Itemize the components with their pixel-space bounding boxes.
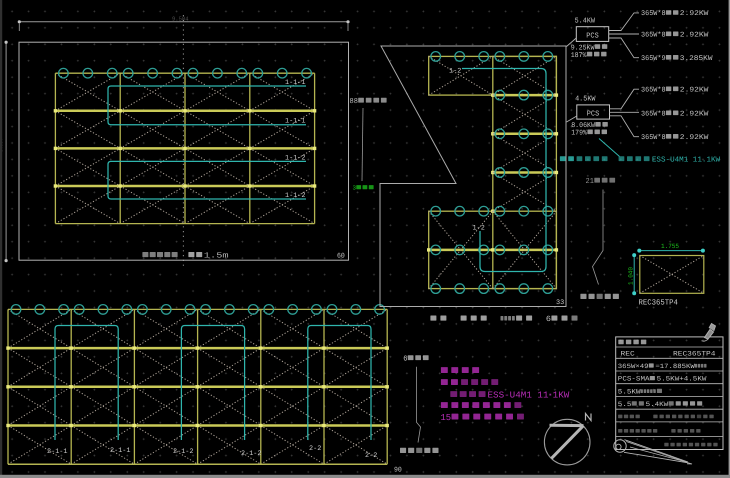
svg-text:2-2: 2-2 [309, 445, 321, 453]
svg-text:1-2: 1-2 [473, 225, 485, 233]
svg-text:3: 3 [353, 185, 357, 192]
svg-text:365W*8: 365W*8 [641, 110, 666, 119]
svg-text:3.285KW: 3.285KW [680, 55, 713, 63]
svg-text:365W*8: 365W*8 [641, 9, 666, 18]
svg-text:4.5KW: 4.5KW [575, 96, 596, 104]
svg-text:PCS: PCS [586, 33, 599, 41]
svg-text:REC365TP4: REC365TP4 [673, 351, 716, 359]
svg-text:5.4KW: 5.4KW [575, 17, 596, 25]
svg-text:1.5m: 1.5m [204, 252, 229, 261]
svg-text:5.5KW: 5.5KW [618, 388, 642, 396]
svg-text:2-2: 2-2 [365, 452, 377, 460]
svg-text:REC: REC [621, 351, 635, 359]
svg-text:33: 33 [556, 299, 564, 307]
svg-text:88: 88 [350, 97, 359, 106]
svg-text:2.92KW: 2.92KW [680, 32, 709, 40]
svg-text:2.92KW: 2.92KW [680, 111, 709, 119]
svg-text:2-1-2: 2-1-2 [241, 450, 262, 458]
svg-text:365W*9: 365W*9 [641, 54, 666, 63]
svg-text:90: 90 [394, 467, 402, 475]
svg-text:ESS-U4M1 11: ESS-U4M1 11 [488, 390, 549, 401]
svg-text:1-1-2: 1-1-2 [285, 154, 306, 162]
svg-text:1.040: 1.040 [627, 267, 634, 285]
svg-text:2-1-1: 2-1-1 [110, 447, 131, 455]
svg-text:1KW: 1KW [553, 390, 570, 401]
svg-text:365W*8: 365W*8 [641, 133, 666, 142]
svg-text:5.4KW: 5.4KW [646, 401, 670, 409]
svg-text:ESS-U4M1 11.1KW: ESS-U4M1 11.1KW [652, 156, 721, 165]
svg-text:2.92KW: 2.92KW [680, 10, 709, 18]
svg-text:PCS-SMA: PCS-SMA [618, 376, 651, 384]
svg-text:6: 6 [403, 355, 408, 364]
svg-text:365W*8: 365W*8 [641, 31, 666, 40]
svg-text:PCS: PCS [587, 111, 600, 119]
svg-text:5.5KW+4.5KW: 5.5KW+4.5KW [657, 376, 708, 384]
svg-text:1-1-1: 1-1-1 [285, 118, 306, 126]
svg-text:REC365TP4: REC365TP4 [639, 299, 679, 308]
svg-text:179%: 179% [571, 130, 587, 138]
svg-text:2-1-2: 2-1-2 [173, 448, 194, 456]
svg-text:187%: 187% [571, 52, 587, 60]
svg-text:2.92KW: 2.92KW [680, 134, 709, 142]
svg-text:9.504: 9.504 [172, 15, 189, 22]
svg-text:1-1-1: 1-1-1 [285, 79, 306, 87]
svg-text:60: 60 [337, 253, 345, 261]
svg-text:365W×49: 365W×49 [618, 363, 649, 370]
svg-text:15: 15 [441, 412, 452, 423]
svg-text:21: 21 [586, 177, 595, 186]
svg-text:1.755: 1.755 [661, 243, 679, 250]
svg-text:2-1-1: 2-1-1 [47, 448, 68, 456]
svg-text:5.5: 5.5 [618, 401, 632, 409]
svg-text:6: 6 [546, 315, 551, 324]
svg-text:=17.885KW: =17.885KW [655, 363, 695, 370]
svg-text:2.92KW: 2.92KW [680, 87, 709, 95]
svg-text:1-1-2: 1-1-2 [285, 192, 306, 200]
svg-text:1-2: 1-2 [449, 68, 461, 76]
svg-text:365W*8: 365W*8 [641, 86, 666, 95]
